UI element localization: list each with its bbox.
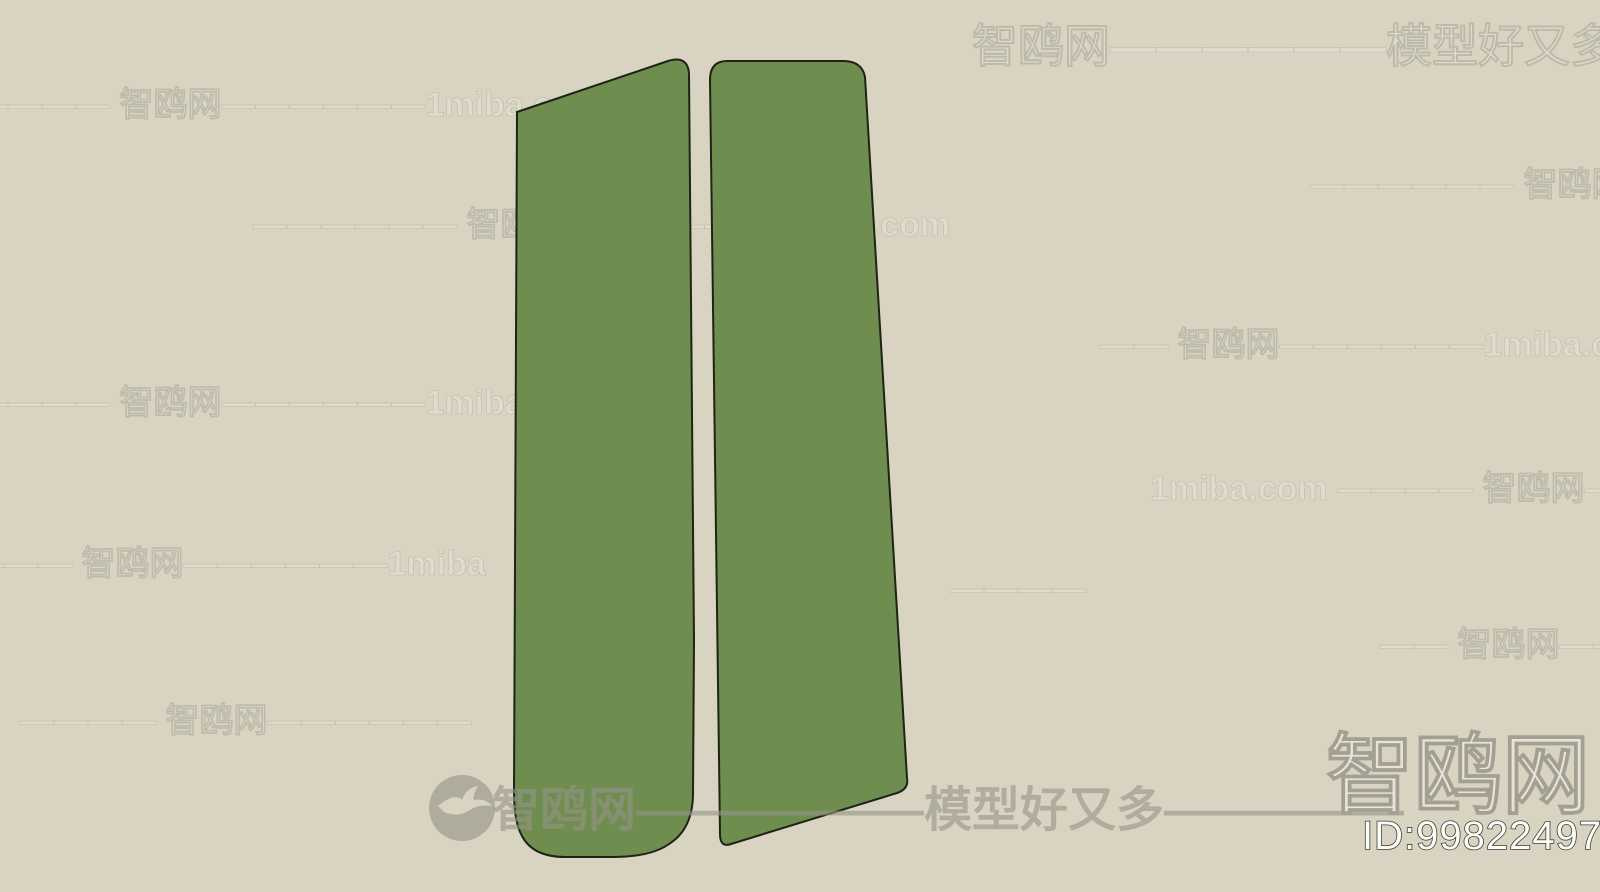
svg-text:————— 智鸥网——————1miba.com: ————— 智鸥网——————1miba.com (0, 86, 603, 124)
svg-text:—— 智鸥网——————1miba.com: —— 智鸥网——————1miba.com (1100, 326, 1600, 364)
svg-text:—————— 智鸥网——: —————— 智鸥网—— (1310, 166, 1600, 204)
svg-text:———— 智鸥网——————: ———— 智鸥网—————— (20, 702, 471, 740)
svg-text:————: ———— (950, 570, 1086, 608)
svg-text:—— 智鸥网————: —— 智鸥网———— (1380, 626, 1600, 664)
svg-text:————— 智鸥网——————1miba.com: ————— 智鸥网——————1miba.com (0, 384, 603, 422)
svg-text:——— 智鸥网——————1miba: ——— 智鸥网——————1miba (0, 545, 487, 583)
svg-text:1miba.com ———— 智鸥网——: 1miba.com ———— 智鸥网—— (1150, 470, 1600, 508)
svg-text:智鸥网: 智鸥网 (1326, 726, 1590, 825)
svg-text:智鸥网——————模型好又多————: 智鸥网——————模型好又多———— (972, 20, 1600, 72)
svg-text:ID:998224971: ID:998224971 (1362, 814, 1600, 858)
svg-text:智鸥网——————模型好又多—————: 智鸥网——————模型好又多————— (492, 784, 1404, 837)
